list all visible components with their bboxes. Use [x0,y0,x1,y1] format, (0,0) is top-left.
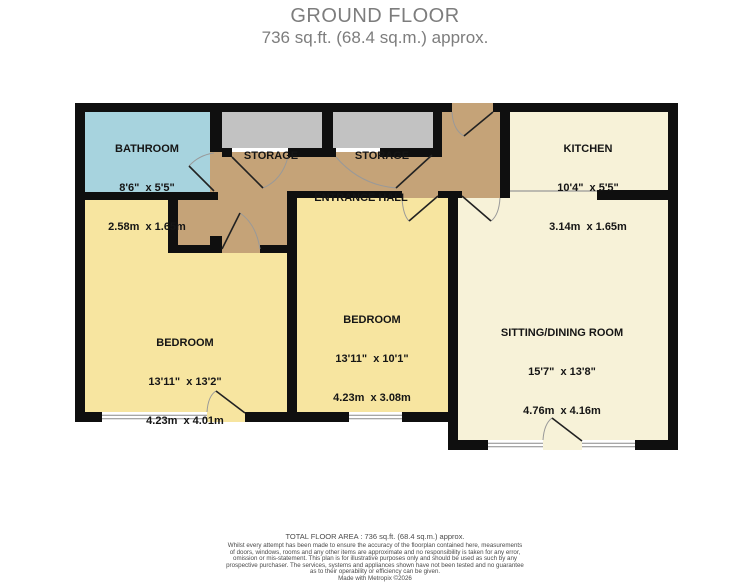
sitting-room-dims-m: 4.76m x 4.16m [501,405,623,418]
room-label-entrance-hall: ENTRANCE HALL [314,166,408,231]
bedroom1-name: BEDROOM [146,337,224,350]
room-label-storage1: STORAGE [244,124,298,189]
bedroom2-dims-ft: 13'11" x 10'1" [333,353,411,366]
sitting-room-name: SITTING/DINING ROOM [501,327,623,340]
room-label-bathroom: BATHROOM 8'6" x 5'5" 2.58m x 1.65m [108,117,186,260]
bedroom1-dims-ft: 13'11" x 13'2" [146,376,224,389]
bathroom-dims-m: 2.58m x 1.65m [108,221,186,234]
hall-entry-floor [442,103,503,198]
storage1-name: STORAGE [244,150,298,163]
bedroom2-name: BEDROOM [333,314,411,327]
sitting-room-dims-ft: 15'7" x 13'8" [501,366,623,379]
room-label-bedroom1: BEDROOM 13'11" x 13'2" 4.23m x 4.01m [146,311,224,454]
bedroom2-dims-m: 4.23m x 3.08m [333,392,411,405]
kitchen-dims-m: 3.14m x 1.65m [549,221,627,234]
bedroom1-dims-m: 4.23m x 4.01m [146,415,224,428]
room-label-sitting-room: SITTING/DINING ROOM 15'7" x 13'8" 4.76m … [501,301,623,444]
floorplan-page: GROUND FLOOR 736 sq.ft. (68.4 sq.m.) app… [0,0,750,584]
hall-vestibule-floor [178,192,287,253]
entrance-hall-name: ENTRANCE HALL [314,192,408,205]
bathroom-name: BATHROOM [108,143,186,156]
credit-line: Made with Metropix ©2026 [0,576,750,583]
disclaimer: Whilst every attempt has been made to en… [0,543,750,583]
total-floor-area: TOTAL FLOOR AREA : 736 sq.ft. (68.4 sq.m… [0,532,750,541]
kitchen-dims-ft: 10'4" x 5'5" [549,182,627,195]
bathroom-dims-ft: 8'6" x 5'5" [108,182,186,195]
kitchen-name: KITCHEN [549,143,627,156]
room-label-kitchen: KITCHEN 10'4" x 5'5" 3.14m x 1.65m [549,117,627,260]
storage2-name: STORAGE [355,150,409,163]
room-label-bedroom2: BEDROOM 13'11" x 10'1" 4.23m x 3.08m [333,288,411,431]
